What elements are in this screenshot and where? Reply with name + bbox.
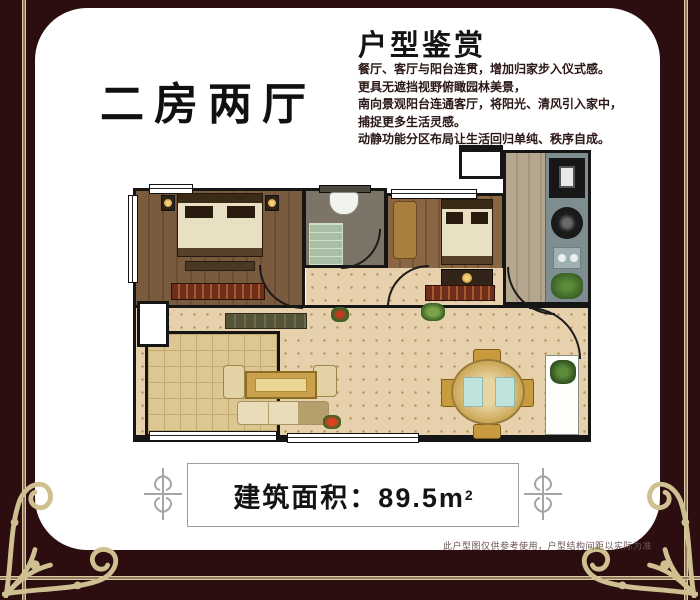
corner-flourish-icon [572, 472, 698, 598]
dining-table [451, 359, 525, 425]
corner-flourish-icon [2, 472, 128, 598]
range-hood [549, 158, 585, 198]
flower-pot [323, 415, 341, 429]
window-master-left [128, 195, 138, 283]
floorplan-image [125, 143, 595, 455]
nightstand-lamp [161, 195, 175, 211]
master-bed [177, 193, 263, 257]
description-paragraph: 餐厅、客厅与阳台连贯，增加归家步入仪式感。 更具无遮挡视野俯瞰园林美景， 南向景… [358, 61, 658, 149]
sofa [237, 401, 329, 425]
bedroom2-sofa [393, 201, 417, 259]
banner-fleur-icon [140, 466, 186, 522]
kitchen-sink [553, 247, 581, 269]
second-bed [441, 199, 493, 265]
dining-chair [473, 424, 501, 439]
utility-shaft-top [459, 145, 503, 179]
banner-fleur-icon [520, 466, 566, 522]
utility-shaft-left [137, 301, 169, 347]
window-living-bottom [287, 433, 419, 443]
armchair [223, 365, 245, 399]
window-balcony-bottom [149, 431, 277, 441]
kitchen-plant [551, 273, 583, 299]
area-banner: 建筑面积：89.5m2 [187, 463, 519, 527]
flower-decor [331, 307, 349, 322]
coffee-table [245, 371, 317, 399]
floorplan-advert: { "panel": { "plan_type_title": "二房两厅", … [0, 0, 700, 600]
description-line: 南向景观阳台连通客厅，将阳光、清风引入家中， [358, 96, 658, 114]
entry-cabinet [545, 355, 579, 435]
nightstand-lamp [265, 195, 279, 211]
area-value: 建筑面积：89.5m [233, 476, 465, 515]
flower-decor [421, 303, 445, 321]
description-line: 捕捉更多生活灵感。 [358, 114, 658, 132]
shower-tray [309, 223, 343, 265]
plan-type-title: 二房两厅 [100, 68, 350, 132]
window-bedroom2-top [391, 189, 477, 199]
bedroom2-wardrobe [425, 285, 495, 301]
description-line: 更具无遮挡视野俯瞰园林美景， [358, 79, 658, 97]
disclaimer-text: 此户型图仅供参考使用，户型结构间距以实际为准 [370, 539, 652, 552]
bed-bench [185, 261, 255, 271]
stove-burner [551, 207, 583, 239]
tv-cabinet [225, 313, 307, 329]
section-title: 户型鉴赏 [358, 22, 486, 64]
description-line: 餐厅、客厅与阳台连贯，增加归家步入仪式感。 [358, 61, 658, 79]
master-wardrobe [171, 283, 265, 300]
area-superscript: 2 [465, 487, 473, 503]
